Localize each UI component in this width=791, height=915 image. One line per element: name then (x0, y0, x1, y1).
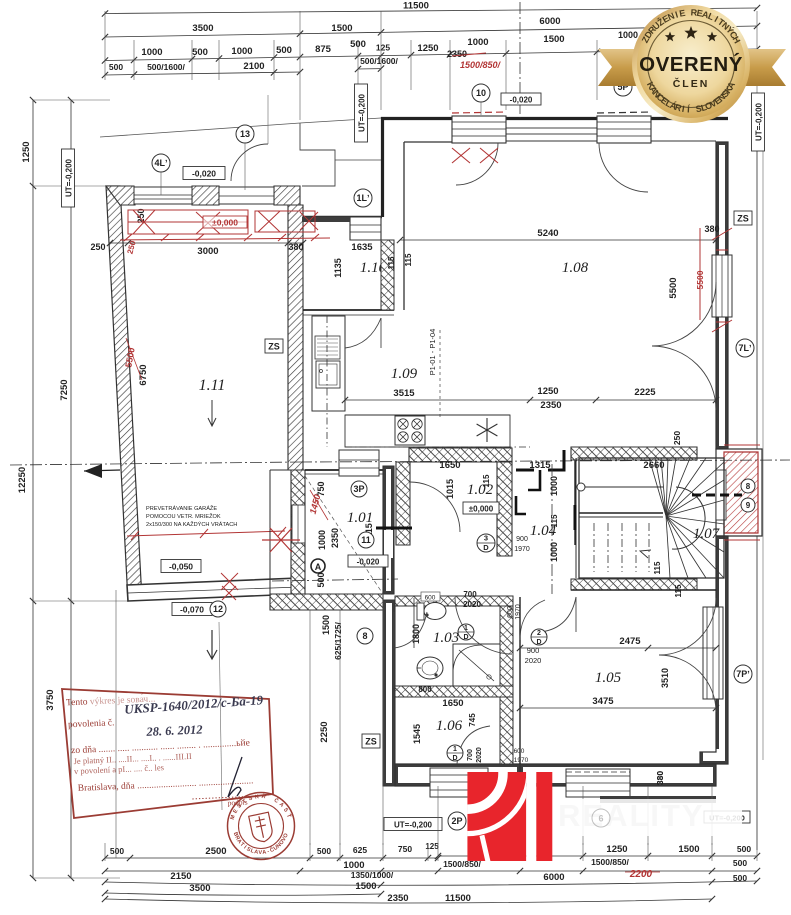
svg-text:1000: 1000 (549, 476, 559, 496)
svg-text:1.06: 1.06 (436, 718, 463, 734)
svg-text:5500: 5500 (695, 270, 705, 289)
svg-text:2660: 2660 (643, 460, 664, 471)
svg-text:UT=-0,200: UT=-0,200 (394, 820, 433, 829)
svg-text:1.11: 1.11 (199, 377, 226, 394)
svg-text:A: A (278, 802, 285, 809)
svg-text:500: 500 (317, 846, 331, 856)
svg-text:500: 500 (109, 62, 123, 72)
svg-text:2020: 2020 (525, 656, 542, 665)
svg-text:500: 500 (110, 846, 124, 856)
svg-text:7250: 7250 (59, 379, 70, 400)
svg-text:1500: 1500 (543, 34, 564, 45)
svg-text:500: 500 (737, 844, 751, 854)
svg-text:1Lʼ: 1Lʼ (356, 193, 369, 203)
svg-text:1970: 1970 (515, 604, 522, 620)
svg-text:1545: 1545 (412, 724, 422, 744)
svg-text:1.05: 1.05 (595, 670, 622, 686)
svg-text:11500: 11500 (445, 893, 471, 904)
svg-text:1.07: 1.07 (693, 526, 721, 542)
svg-text:2475: 2475 (619, 636, 641, 647)
svg-text:E: E (232, 808, 239, 814)
svg-text:4Lʼ: 4Lʼ (154, 158, 167, 168)
svg-text:500: 500 (733, 858, 747, 868)
svg-text:8: 8 (362, 631, 367, 641)
svg-text:3475: 3475 (592, 696, 614, 707)
svg-text:625/1725/: 625/1725/ (333, 621, 343, 659)
svg-text:1800: 1800 (411, 624, 421, 644)
svg-text:115: 115 (387, 256, 396, 269)
svg-text:1000: 1000 (231, 46, 252, 57)
svg-text:2225: 2225 (634, 387, 656, 398)
svg-text:Bratislava, dňa ..............: Bratislava, dňa ........................… (78, 776, 254, 794)
svg-text:115: 115 (674, 584, 683, 597)
svg-text:625: 625 (353, 845, 367, 855)
svg-text:6: 6 (598, 814, 603, 824)
svg-text:3515: 3515 (393, 388, 415, 399)
svg-text:D: D (536, 639, 541, 646)
svg-text:REALITY: REALITY (558, 798, 705, 833)
svg-text:1250: 1250 (537, 386, 558, 397)
svg-text:11: 11 (361, 535, 371, 545)
svg-text:250: 250 (672, 431, 682, 445)
svg-text:500: 500 (192, 47, 208, 58)
svg-text:1.03: 1.03 (433, 630, 459, 646)
svg-text:600: 600 (507, 606, 514, 618)
svg-text:700: 700 (467, 749, 474, 761)
svg-text:380: 380 (704, 224, 719, 234)
svg-text:1000: 1000 (141, 47, 162, 58)
svg-text:-0,050: -0,050 (169, 561, 193, 571)
svg-text:povolenia č.: povolenia č. (68, 718, 115, 730)
svg-text:S: S (282, 807, 289, 814)
svg-text:2150: 2150 (170, 871, 191, 882)
svg-text:1250: 1250 (21, 141, 32, 162)
svg-text:125: 125 (376, 43, 390, 53)
svg-text:1000: 1000 (618, 30, 638, 40)
svg-text:UT=-0,200: UT=-0,200 (357, 93, 366, 132)
svg-text:750: 750 (398, 844, 412, 854)
svg-text:1.08: 1.08 (562, 260, 589, 276)
svg-text:-0,020: -0,020 (510, 95, 533, 104)
svg-text:±0,000: ±0,000 (469, 504, 494, 513)
svg-text:D: D (463, 634, 468, 641)
svg-text:2350: 2350 (330, 528, 340, 548)
svg-text:1500/850/: 1500/850/ (591, 857, 629, 867)
svg-text:875: 875 (315, 44, 332, 55)
svg-text:3P: 3P (353, 484, 364, 494)
svg-text:380: 380 (288, 242, 303, 252)
svg-text:3: 3 (484, 534, 488, 543)
svg-text:700: 700 (463, 590, 477, 599)
svg-text:O: O (283, 832, 290, 839)
svg-text:500: 500 (276, 45, 292, 56)
svg-text:1500: 1500 (355, 881, 376, 892)
svg-text:28. 6. 2012: 28. 6. 2012 (145, 722, 203, 738)
svg-text:900: 900 (516, 536, 528, 543)
svg-text:5500: 5500 (668, 277, 679, 298)
svg-text:1000: 1000 (467, 37, 488, 48)
svg-text:800: 800 (418, 685, 432, 694)
svg-text:6000: 6000 (543, 872, 564, 883)
svg-text:1500: 1500 (331, 23, 352, 34)
svg-text:12: 12 (213, 604, 223, 614)
svg-text:3500: 3500 (192, 23, 213, 34)
svg-text:ČLEN: ČLEN (673, 77, 710, 90)
svg-text:2020: 2020 (463, 600, 481, 609)
svg-text:500: 500 (733, 873, 747, 883)
svg-text:D: D (483, 543, 489, 552)
svg-text:900: 900 (527, 646, 540, 655)
svg-text:1250: 1250 (606, 844, 627, 855)
svg-text:6750: 6750 (138, 364, 149, 385)
svg-text:2350: 2350 (387, 893, 408, 904)
svg-text:ZS: ZS (737, 213, 749, 223)
svg-text:ZS: ZS (365, 736, 377, 746)
svg-text:5500: 5500 (123, 347, 136, 368)
svg-text:1350/1000/: 1350/1000/ (351, 870, 394, 880)
svg-text:745: 745 (468, 713, 477, 727)
svg-text:115: 115 (482, 474, 491, 487)
svg-text:1970: 1970 (514, 757, 529, 764)
svg-text:3500: 3500 (189, 883, 210, 894)
svg-text:1000: 1000 (549, 542, 559, 562)
svg-text:D: D (452, 755, 457, 762)
svg-text:115: 115 (550, 514, 559, 527)
svg-text:750: 750 (316, 481, 326, 496)
svg-text:600: 600 (425, 595, 436, 602)
svg-text:1015: 1015 (445, 479, 455, 499)
svg-text:1500/850/: 1500/850/ (460, 60, 502, 70)
svg-text:1500: 1500 (678, 844, 699, 855)
svg-text:P1-01 - P1-04: P1-01 - P1-04 (428, 329, 437, 376)
svg-text:115: 115 (653, 561, 662, 574)
svg-text:2350: 2350 (540, 400, 561, 411)
svg-text:250: 250 (90, 242, 105, 252)
svg-text:3000: 3000 (197, 246, 218, 257)
svg-text:6000: 6000 (539, 16, 560, 27)
svg-text:2200: 2200 (629, 869, 653, 880)
svg-text:1635: 1635 (351, 242, 373, 253)
svg-text:K: K (255, 794, 260, 800)
svg-text:1135: 1135 (333, 258, 343, 278)
svg-text:250: 250 (126, 239, 138, 255)
svg-text:-0,070: -0,070 (180, 604, 204, 614)
svg-text:3750: 3750 (45, 689, 56, 710)
svg-text:1: 1 (453, 746, 457, 753)
svg-text:1650: 1650 (442, 698, 463, 709)
svg-text:7Pʼ: 7Pʼ (736, 669, 750, 679)
svg-text:7Lʼ: 7Lʼ (738, 343, 751, 353)
svg-text:ZS: ZS (268, 341, 280, 351)
svg-text:1.09: 1.09 (391, 366, 418, 382)
svg-text:8: 8 (746, 482, 751, 491)
svg-text:2x150/300 NA KAŽDÝCH VRÁTACH: 2x150/300 NA KAŽDÝCH VRÁTACH (146, 520, 237, 528)
svg-text:125: 125 (425, 842, 439, 851)
svg-text:2100: 2100 (243, 61, 264, 72)
svg-text:-0,020: -0,020 (357, 557, 380, 566)
svg-text:12250: 12250 (17, 467, 28, 493)
svg-text:2020: 2020 (476, 747, 483, 763)
svg-text:500/1600/: 500/1600/ (147, 62, 185, 72)
svg-text:500/1600/: 500/1600/ (360, 56, 398, 66)
svg-text:11500: 11500 (403, 1, 429, 12)
svg-text:PREVETRÁVANIE GARÁŽE: PREVETRÁVANIE GARÁŽE (146, 504, 217, 512)
svg-text:13: 13 (240, 129, 250, 139)
svg-text:2350: 2350 (447, 49, 467, 59)
svg-text:1000: 1000 (317, 530, 327, 550)
svg-text:600: 600 (514, 748, 525, 755)
svg-text:±0,000: ±0,000 (212, 218, 238, 228)
svg-text:M: M (230, 814, 237, 821)
svg-text:1450: 1450 (308, 493, 323, 515)
svg-text:-0,020: -0,020 (192, 168, 216, 178)
svg-text:2250: 2250 (319, 721, 330, 742)
svg-text:POMOCOU VETR. MRIEŽOK: POMOCOU VETR. MRIEŽOK (146, 512, 221, 520)
svg-text:380: 380 (655, 771, 665, 785)
svg-text:1500: 1500 (321, 615, 331, 635)
svg-text:2P: 2P (451, 816, 462, 826)
svg-text:115: 115 (404, 253, 413, 266)
svg-text:UT=-0,200: UT=-0,200 (64, 158, 73, 197)
svg-text:2500: 2500 (205, 846, 226, 857)
svg-text:A: A (315, 562, 322, 572)
svg-text:OVERENÝ: OVERENÝ (639, 52, 743, 76)
svg-text:2: 2 (537, 630, 541, 637)
svg-text:1650: 1650 (439, 460, 460, 471)
svg-text:1970: 1970 (514, 546, 530, 553)
svg-text:Á: Á (261, 793, 266, 800)
svg-text:3510: 3510 (660, 668, 670, 688)
svg-text:1250: 1250 (417, 43, 438, 54)
svg-text:9: 9 (746, 501, 751, 510)
svg-text:5240: 5240 (537, 228, 558, 239)
svg-text:UT=-0,200: UT=-0,200 (754, 102, 763, 141)
svg-text:10: 10 (476, 88, 486, 98)
